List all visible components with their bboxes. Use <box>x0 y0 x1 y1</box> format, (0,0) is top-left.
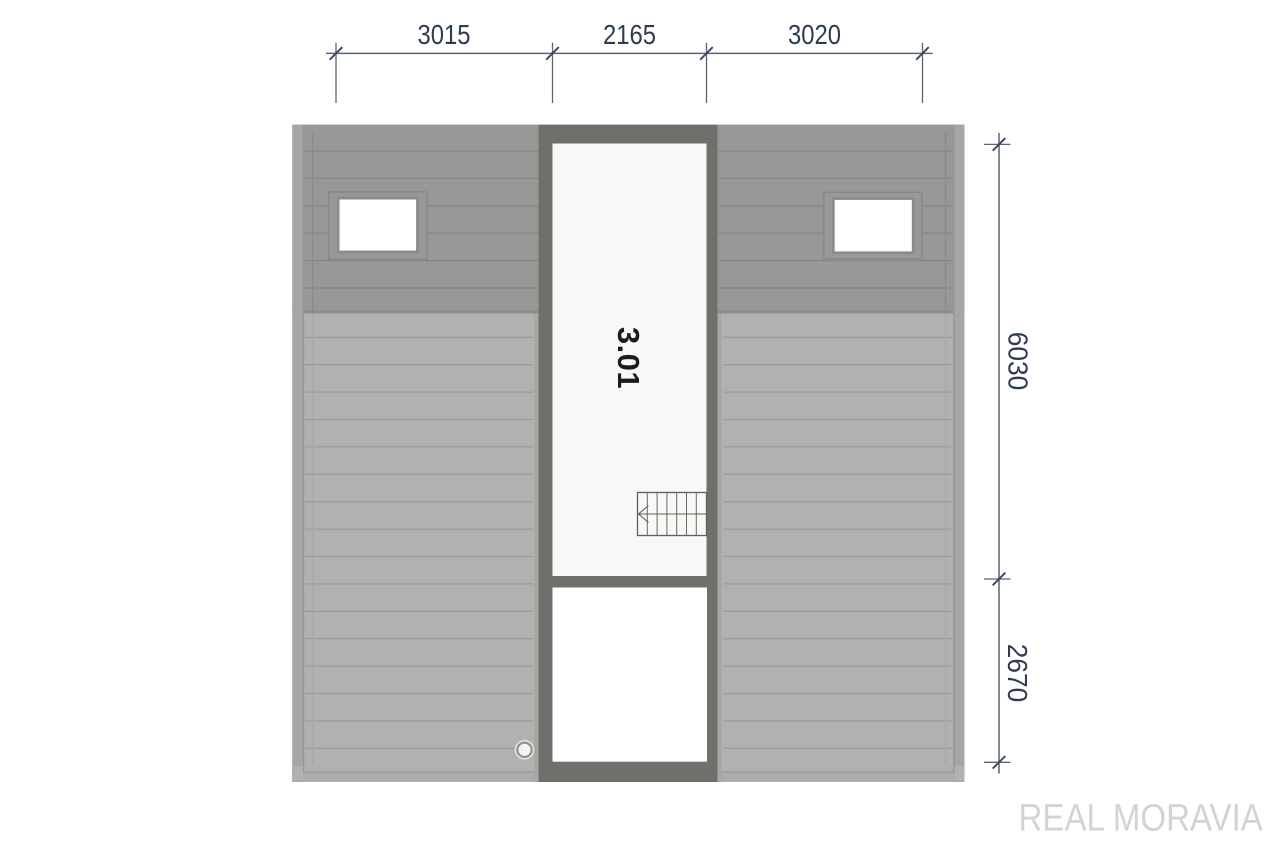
svg-text:3.01: 3.01 <box>611 327 646 389</box>
svg-text:3020: 3020 <box>788 18 841 50</box>
svg-text:2670: 2670 <box>1002 644 1034 703</box>
svg-text:2165: 2165 <box>603 18 656 50</box>
svg-text:REAL MORAVIA: REAL MORAVIA <box>1019 796 1264 839</box>
svg-text:6030: 6030 <box>1003 332 1035 391</box>
svg-text:3015: 3015 <box>418 18 471 50</box>
